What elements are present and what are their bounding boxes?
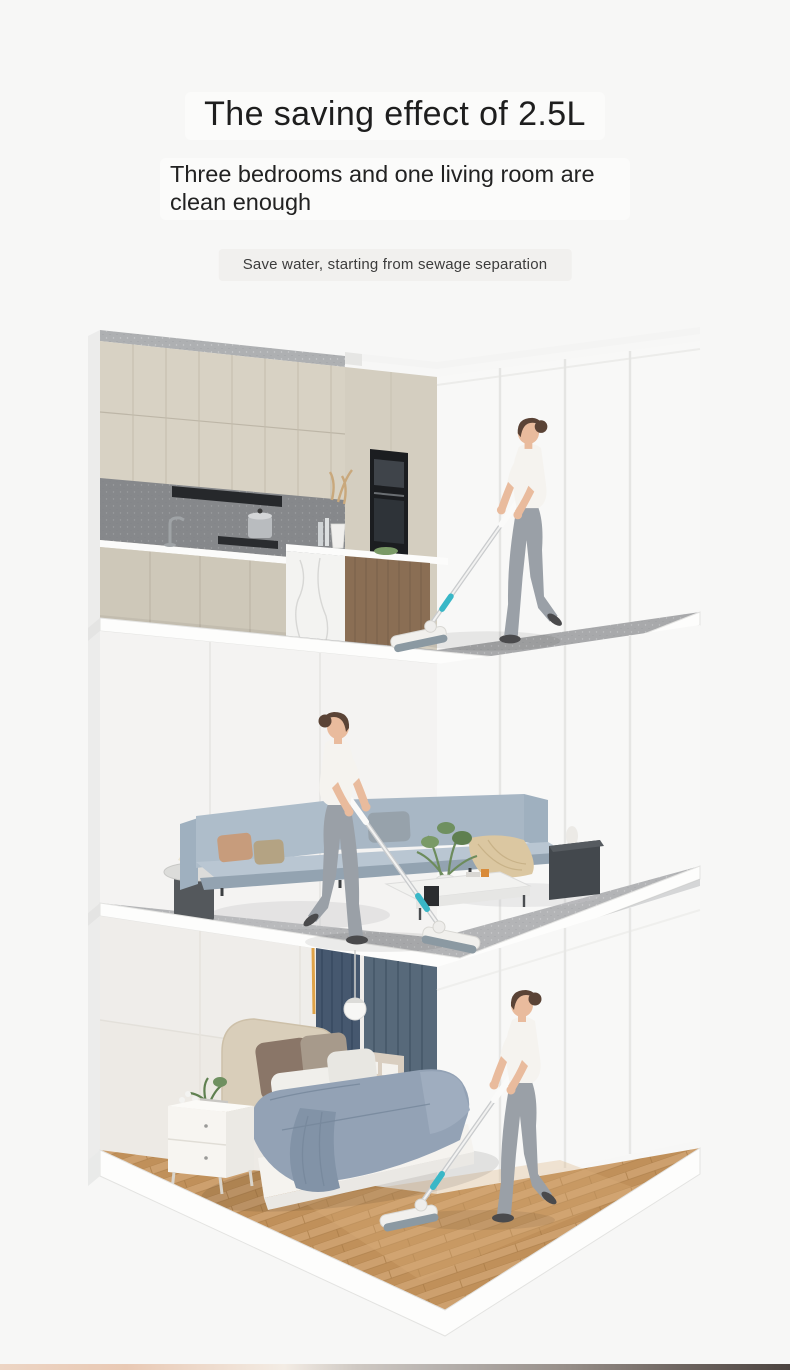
- kitchen-right-wall: [437, 341, 700, 655]
- orange-cup: [481, 869, 489, 877]
- next-section-sliver: [0, 1364, 790, 1370]
- khaki-pillow: [253, 839, 285, 865]
- section-caption: Save water, starting from sewage separat…: [243, 256, 548, 273]
- subtitle-line-1: Three bedrooms and one living room are: [170, 160, 620, 188]
- three-storey-cutaway-illustration: [0, 320, 790, 1364]
- island-plant: [374, 547, 398, 555]
- section-subtitle: Three bedrooms and one living room are c…: [170, 160, 620, 216]
- gray-pillow: [367, 811, 411, 843]
- nightstand-plant: [213, 1077, 227, 1087]
- caption-band: Save water, starting from sewage separat…: [219, 249, 572, 281]
- living-left-wall: [100, 631, 437, 938]
- curtain-accent-strip: [313, 948, 314, 1014]
- kitchen-floor-scene: [88, 327, 700, 677]
- subtitle-line-2: clean enough: [170, 188, 620, 216]
- tan-pillow: [217, 832, 254, 862]
- section-title: The saving effect of 2.5L: [0, 95, 790, 134]
- product-marketing-section: The saving effect of 2.5L Three bedrooms…: [0, 0, 790, 1370]
